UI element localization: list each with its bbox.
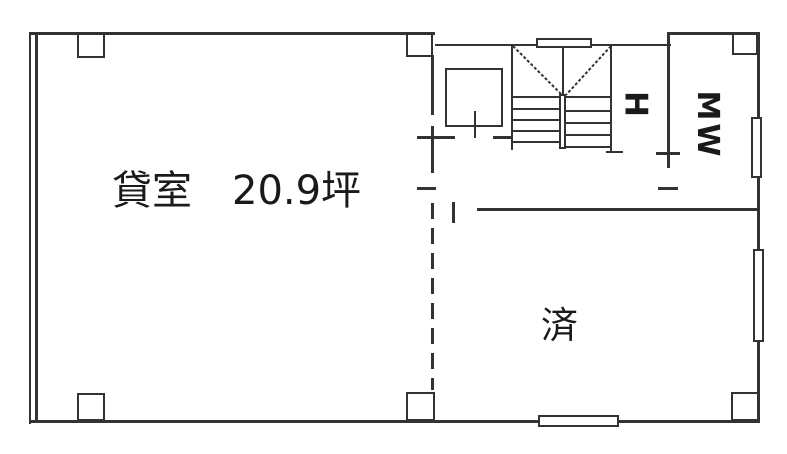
stair-top-rail — [536, 38, 592, 48]
window-right-upper — [751, 117, 762, 178]
window-bottom — [538, 415, 619, 427]
restroom-label: MW — [692, 91, 722, 160]
room-label: 貸室 20.9坪 — [112, 171, 361, 211]
stair-center-divider — [559, 94, 566, 149]
status-label: 済 — [541, 307, 578, 344]
floor-plan: 貸室 20.9坪 済 MW H — [0, 0, 787, 454]
stair-direction-lines — [0, 0, 787, 454]
hall-label: H — [620, 91, 651, 117]
window-right-lower — [753, 249, 764, 342]
